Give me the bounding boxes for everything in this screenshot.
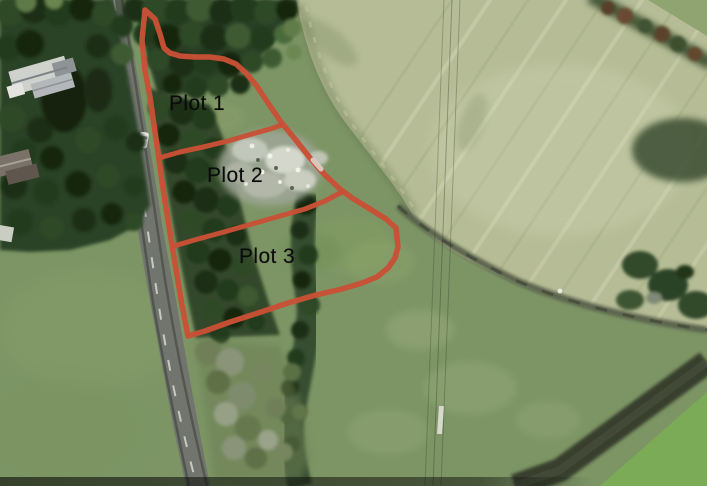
plot-1-label: Plot 1 — [169, 92, 225, 116]
aerial-photo-canvas — [0, 0, 707, 486]
aerial-photo: Plot 1 Plot 2 Plot 3 — [0, 0, 707, 486]
track-object — [558, 289, 563, 294]
plot-3-label: Plot 3 — [239, 245, 295, 269]
plot-2-label: Plot 2 — [207, 164, 263, 188]
bottom-shadow-band — [0, 477, 707, 486]
